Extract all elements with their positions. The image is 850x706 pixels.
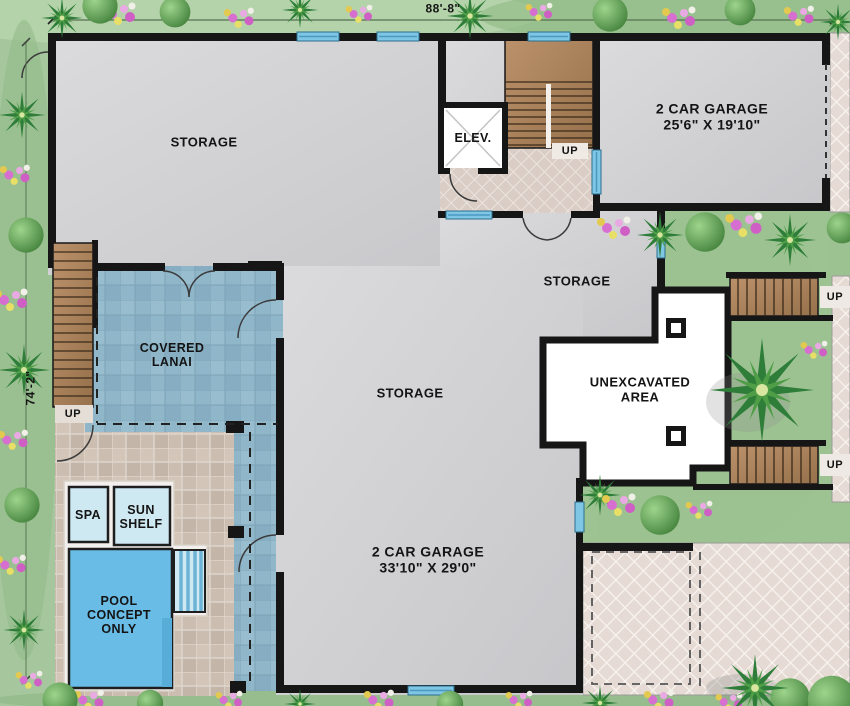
elevator-room bbox=[444, 108, 502, 168]
sun-shelf-basin bbox=[114, 487, 170, 545]
stairwell-stairs bbox=[505, 40, 593, 159]
spa-basin bbox=[69, 487, 108, 542]
floor-plan-drawing bbox=[0, 0, 850, 706]
pool-steps bbox=[174, 550, 205, 612]
storage-nw-floor bbox=[48, 33, 505, 275]
garage-ne-floor bbox=[597, 33, 830, 210]
covered-walkway bbox=[234, 425, 278, 691]
garage-center-floor bbox=[276, 266, 583, 695]
left-stairs bbox=[53, 243, 93, 423]
floor-plan: 88'-8" 74'-2" STORAGE ELEV. 2 CAR GARAGE… bbox=[0, 0, 850, 706]
pool-basin bbox=[69, 549, 172, 688]
covered-lanai-floor bbox=[85, 266, 283, 432]
